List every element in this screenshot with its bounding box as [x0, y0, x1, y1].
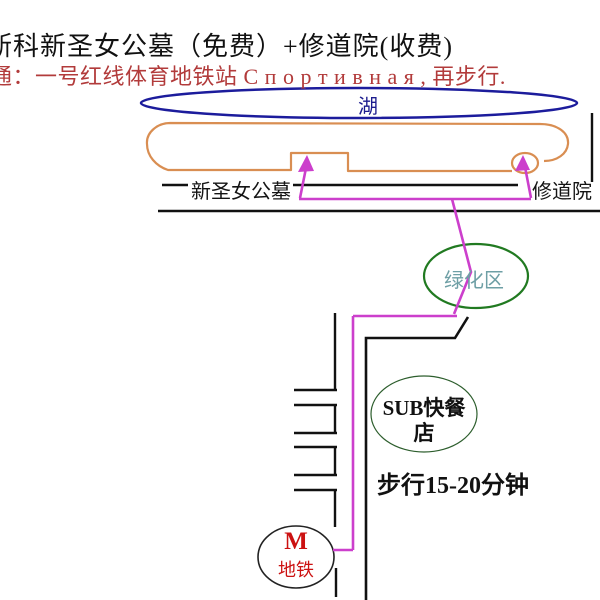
metro-label: 地铁	[271, 556, 321, 582]
road-main-vertical	[366, 317, 468, 600]
page-title: 斯科新圣女公墓（免费）+修道院(收费)	[0, 26, 453, 63]
lake-label: 湖	[358, 90, 378, 119]
cemetery-outline	[147, 123, 568, 171]
restaurant-label-line1: SUB快餐	[383, 396, 466, 420]
route-arrow-cemetery-entrance	[298, 155, 314, 172]
monastery-label: 修道院	[532, 175, 592, 204]
green-area-label: 绿化区	[444, 264, 504, 293]
cemetery-label: 新圣女公墓	[191, 175, 291, 204]
transit-note: 通：一号红线体育地铁站 С п о р т и в н а я , 再步行.	[0, 59, 506, 91]
restaurant-label-line2: 店	[372, 421, 476, 446]
side-streets	[294, 390, 337, 490]
route-arrow-monastery	[515, 155, 530, 171]
route-map: 斯科新圣女公墓（免费）+修道院(收费) 通：一号红线体育地铁站 С п о р …	[0, 0, 600, 600]
road-left-vertical	[335, 313, 336, 597]
restaurant-label: SUB快餐 店	[372, 396, 476, 446]
walk-time-label: 步行15-20分钟	[377, 465, 529, 500]
metro-letter: M	[276, 528, 316, 556]
